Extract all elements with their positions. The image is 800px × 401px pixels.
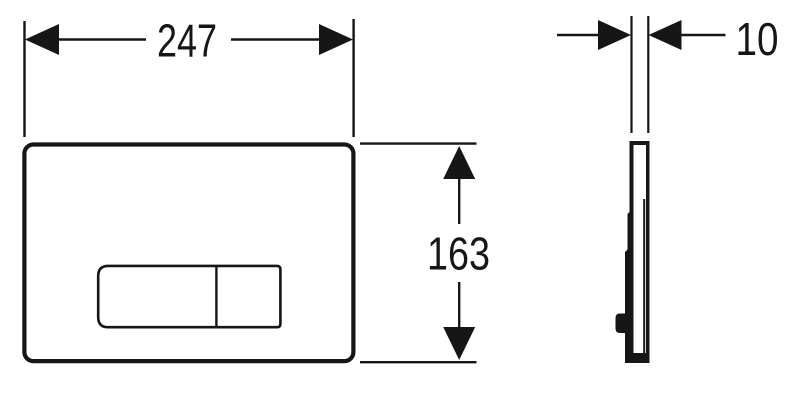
depth-dimension: 10 bbox=[557, 13, 779, 133]
height-arrow-down-icon bbox=[443, 327, 475, 360]
side-view bbox=[616, 141, 650, 363]
width-dimension: 247 bbox=[25, 15, 354, 138]
front-view bbox=[24, 145, 353, 362]
depth-dim-label: 10 bbox=[736, 13, 779, 65]
width-arrow-left-icon bbox=[25, 24, 59, 55]
side-profile-inner-line bbox=[643, 199, 645, 353]
width-arrow-right-icon bbox=[319, 24, 353, 55]
flush-plate-outline bbox=[24, 145, 353, 362]
height-dimension: 163 bbox=[360, 144, 490, 363]
technical-dimension-drawing: 247 163 10 bbox=[0, 0, 800, 401]
button-panel bbox=[98, 266, 280, 327]
depth-arrow-right-icon bbox=[598, 20, 631, 50]
depth-arrow-left-icon bbox=[649, 20, 682, 50]
height-arrow-up-icon bbox=[443, 146, 475, 179]
width-dim-label: 247 bbox=[157, 15, 217, 67]
height-dim-label: 163 bbox=[427, 228, 490, 280]
